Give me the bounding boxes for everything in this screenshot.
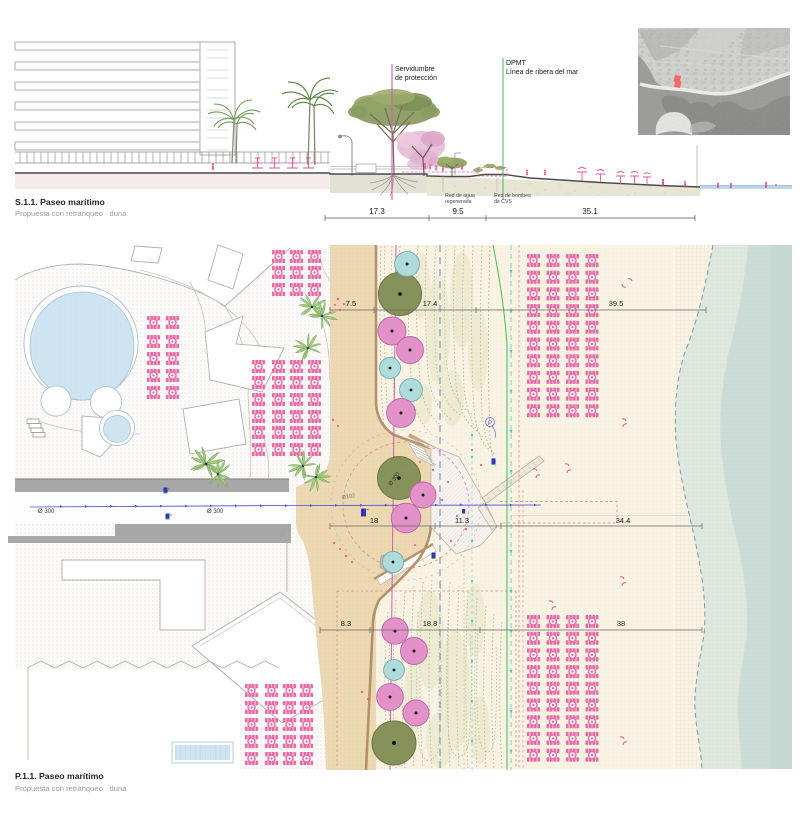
svg-text:de CVS: de CVS [494,199,512,205]
svg-text:P.1.1. Paseo marítimo: P.1.1. Paseo marítimo [15,771,104,781]
svg-text:11.3: 11.3 [455,516,469,525]
svg-text:34.4: 34.4 [616,516,631,525]
svg-text:Línea de ribera del mar: Línea de ribera del mar [506,69,579,76]
svg-text:P: P [488,420,492,427]
svg-text:18: 18 [370,516,378,525]
svg-text:Servidumbre: Servidumbre [395,66,435,73]
svg-text:DPMT: DPMT [506,60,527,67]
svg-text:Propuesta con retranqueo · dun: Propuesta con retranqueo · duna [15,784,127,793]
svg-text:S.1.1. Paseo marítimo: S.1.1. Paseo marítimo [15,197,105,207]
svg-text:17.3: 17.3 [369,207,385,216]
svg-text:Propuesta con retranqueo · dun: Propuesta con retranqueo · duna [15,209,127,218]
svg-text:38: 38 [617,619,625,628]
svg-text:Ø 300: Ø 300 [38,509,55,515]
svg-text:7.5: 7.5 [346,299,356,308]
svg-text:8.3: 8.3 [341,619,351,628]
svg-text:17.4: 17.4 [423,299,438,308]
svg-text:regenerada: regenerada [445,199,472,205]
svg-text:18.8: 18.8 [423,619,438,628]
svg-text:39.5: 39.5 [609,299,624,308]
svg-text:35.1: 35.1 [582,207,598,216]
svg-text:9.5: 9.5 [452,207,464,216]
svg-text:Ø 300: Ø 300 [207,509,224,515]
svg-text:de protección: de protección [395,75,437,82]
